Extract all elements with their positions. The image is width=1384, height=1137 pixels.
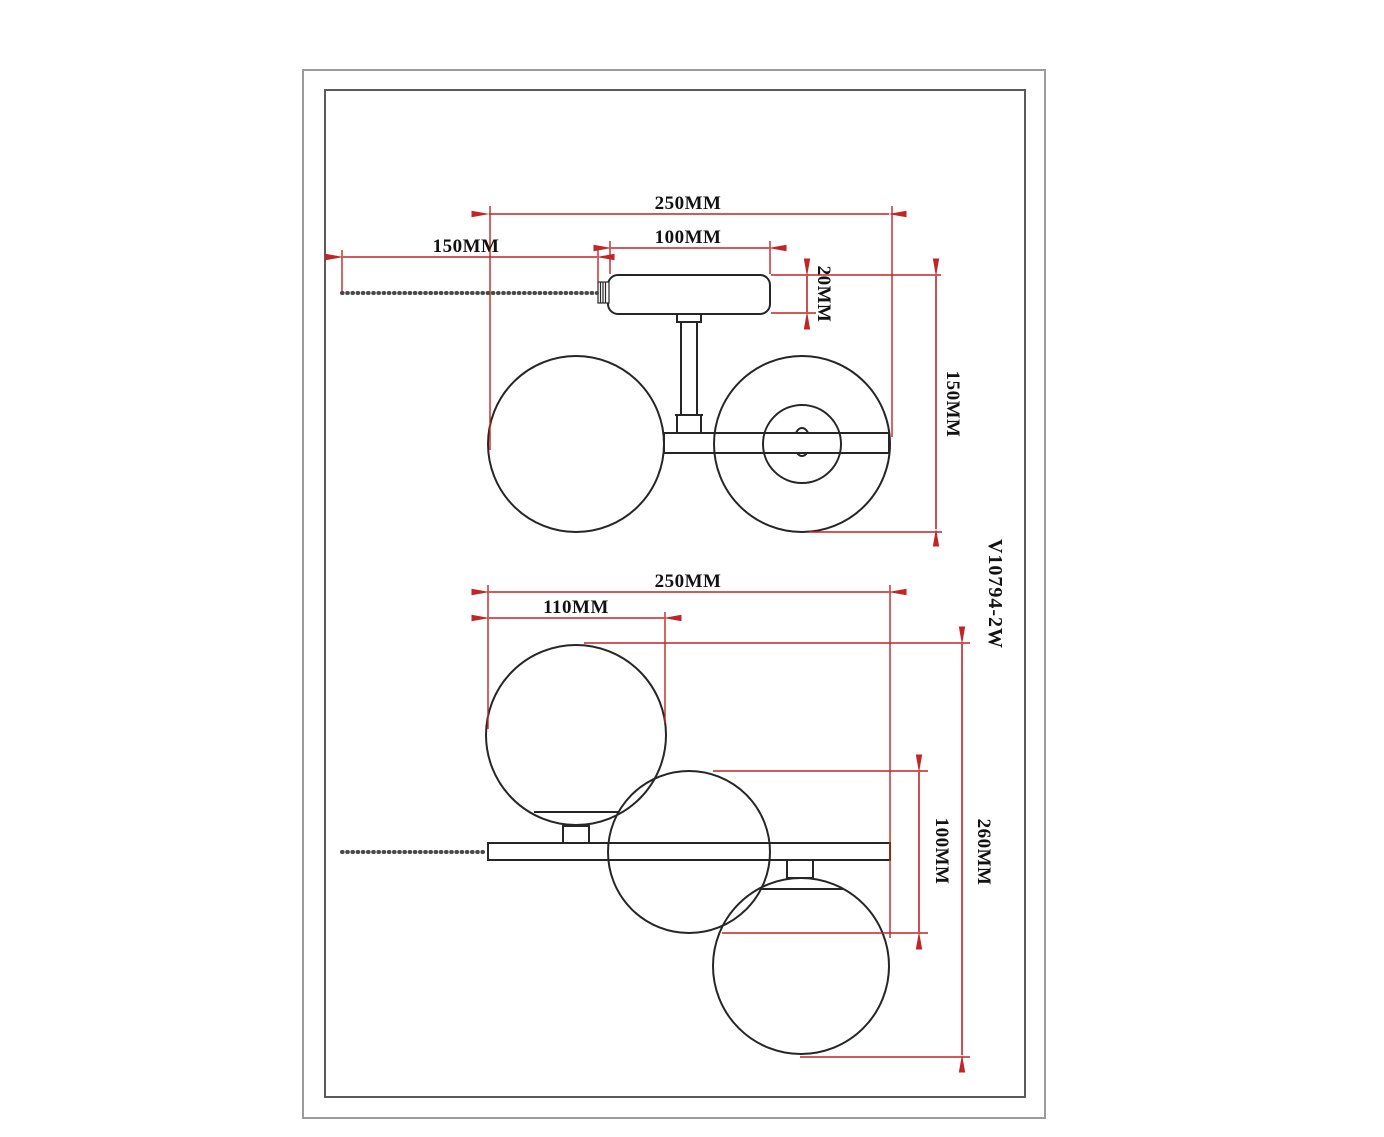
bottom-view-cross-bar [488, 843, 890, 860]
bottom-view-right-globe-socket [787, 860, 813, 878]
dim-top-canopy-width-label: 100MM [655, 227, 722, 248]
top-view-stem-top-collar [677, 314, 701, 322]
top-view-stem [681, 314, 697, 415]
dim-top-overall-height-label: 150MM [942, 371, 963, 438]
dim-bottom-globe-diameter-label: 100MM [931, 818, 952, 885]
part-number: V10794-2W [984, 539, 1006, 649]
dim-top-overall-width-label: 250MM [655, 193, 722, 214]
dim-bottom-globe-offset-label: 110MM [543, 597, 609, 618]
technical-drawing: 250MM 150MM 100MM 20MM 150MM 250MM 110MM… [0, 0, 1384, 1132]
top-view-canopy [608, 275, 770, 314]
top-view-cross-bar [664, 433, 889, 453]
drawing-canvas: 250MM 150MM 100MM 20MM 150MM 250MM 110MM… [0, 0, 1384, 1132]
dim-bottom-overall-height-label: 260MM [973, 819, 994, 886]
top-view-chain-connector [598, 282, 609, 303]
top-view-stem-bottom-collar [677, 415, 701, 433]
bottom-view-left-globe [486, 645, 666, 825]
bottom-view-left-globe-socket [563, 826, 589, 843]
bottom-view-right-globe [713, 878, 889, 1054]
bottom-view-geometry [486, 645, 890, 1054]
bottom-view-dimensions [488, 585, 970, 1057]
dim-bottom-overall-width-label: 250MM [655, 571, 722, 592]
top-view-left-globe [488, 356, 664, 532]
dim-top-canopy-height-label: 20MM [813, 266, 834, 323]
dim-top-chain-label: 150MM [433, 236, 500, 257]
